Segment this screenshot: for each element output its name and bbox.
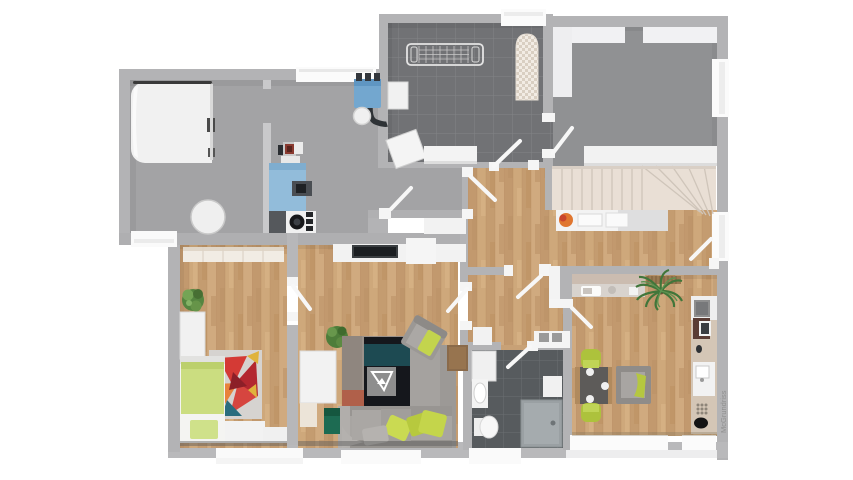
- svg-text:McGrundriss: McGrundriss: [719, 390, 728, 433]
